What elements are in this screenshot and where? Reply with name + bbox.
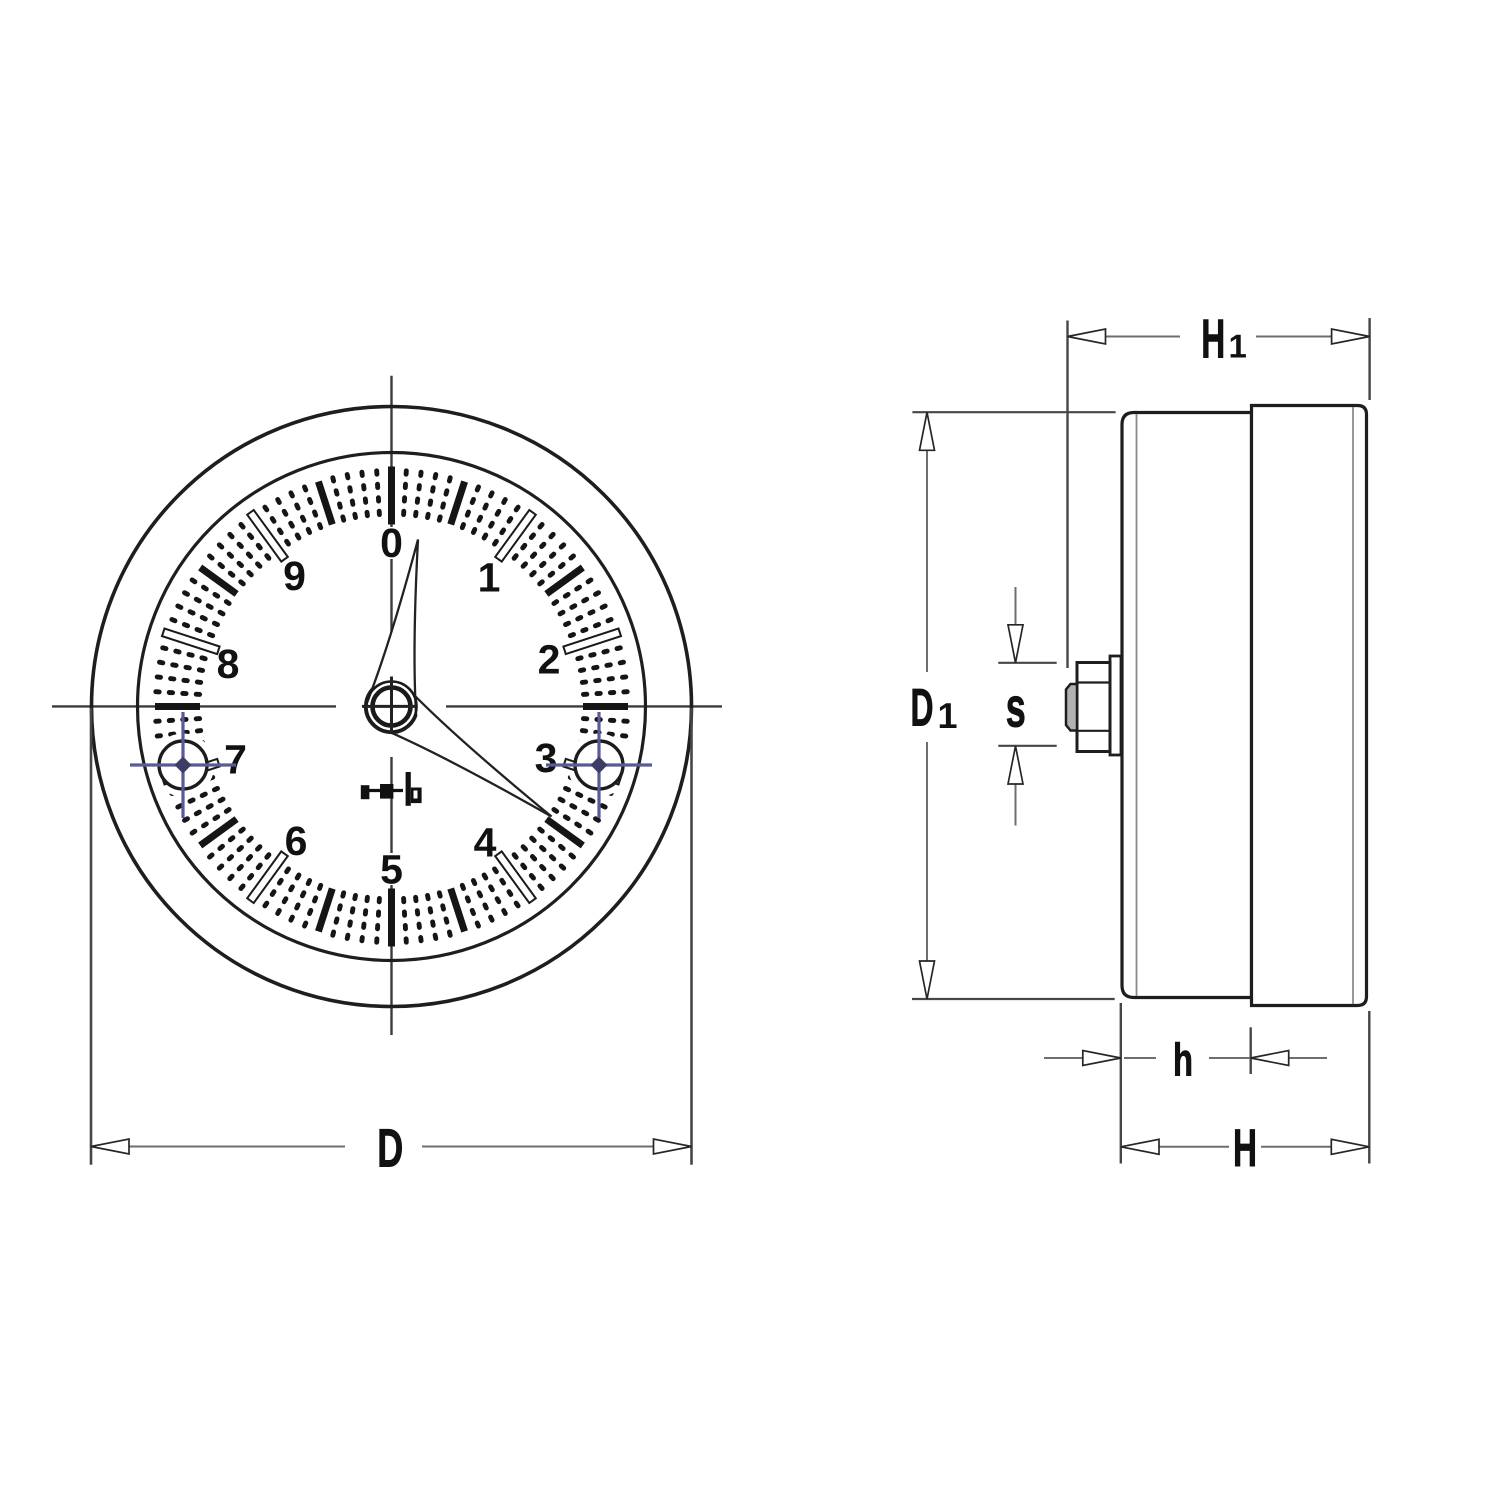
svg-text:h: h	[1173, 1033, 1193, 1085]
svg-text:5: 5	[380, 847, 403, 893]
svg-text:3: 3	[535, 735, 558, 781]
svg-text:0: 0	[380, 520, 403, 566]
svg-text:4: 4	[474, 820, 497, 866]
svg-text:6: 6	[285, 818, 308, 864]
svg-text:1: 1	[478, 555, 501, 601]
svg-text:H: H	[1201, 308, 1225, 370]
svg-text:D: D	[377, 1118, 403, 1178]
svg-text:8: 8	[217, 641, 240, 687]
svg-text:D: D	[911, 679, 934, 738]
svg-text:H: H	[1233, 1119, 1257, 1178]
svg-text:2: 2	[538, 637, 561, 683]
svg-text:9: 9	[283, 553, 306, 599]
svg-text:7: 7	[224, 737, 247, 783]
svg-text:1: 1	[938, 695, 958, 736]
svg-text:1: 1	[1229, 328, 1247, 365]
svg-text:s: s	[1006, 676, 1026, 739]
